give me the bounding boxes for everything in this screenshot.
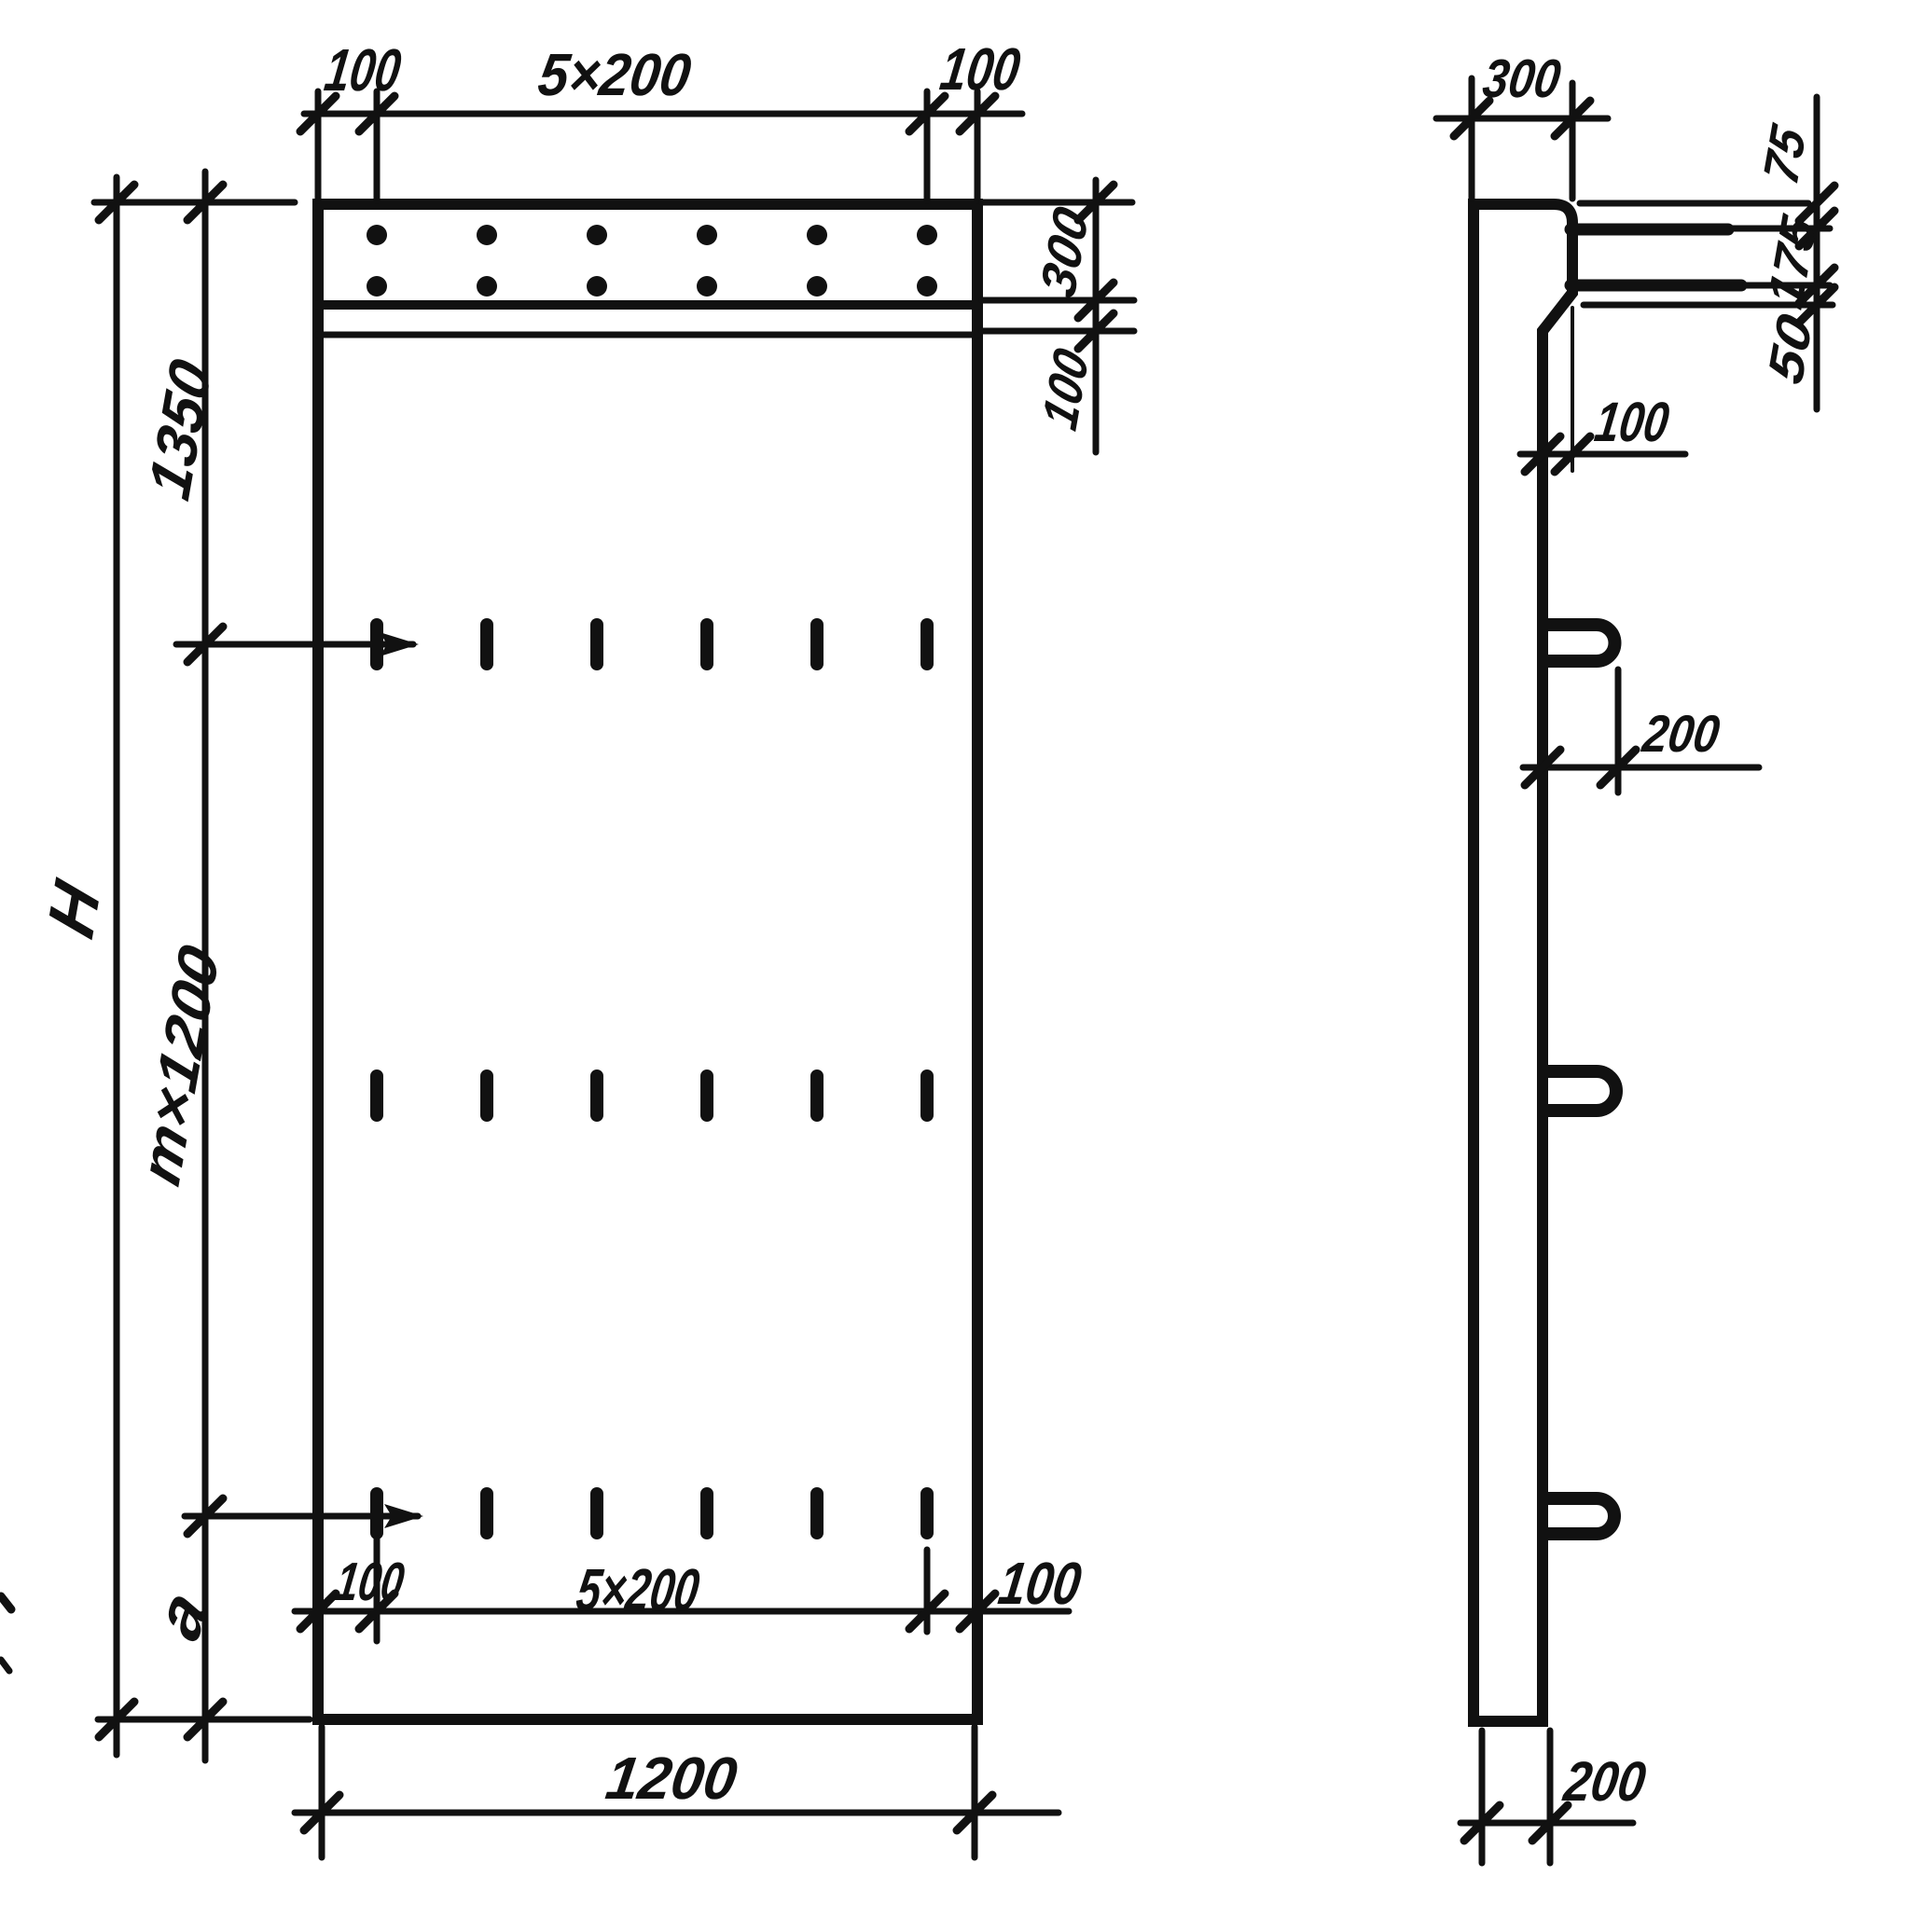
svg-text:100: 100	[936, 35, 1024, 103]
svg-text:200: 200	[1639, 704, 1723, 763]
svg-text:5×200: 5×200	[573, 1556, 703, 1623]
svg-text:300: 300	[1479, 48, 1564, 109]
svg-text:100: 100	[321, 36, 405, 103]
svg-text:100: 100	[1591, 390, 1673, 453]
svg-text:100: 100	[995, 1550, 1086, 1617]
svg-text:5×200: 5×200	[534, 41, 695, 108]
svg-text:200: 200	[1559, 1749, 1649, 1813]
svg-text:100: 100	[332, 1552, 408, 1612]
svg-text:1200: 1200	[602, 1745, 741, 1812]
